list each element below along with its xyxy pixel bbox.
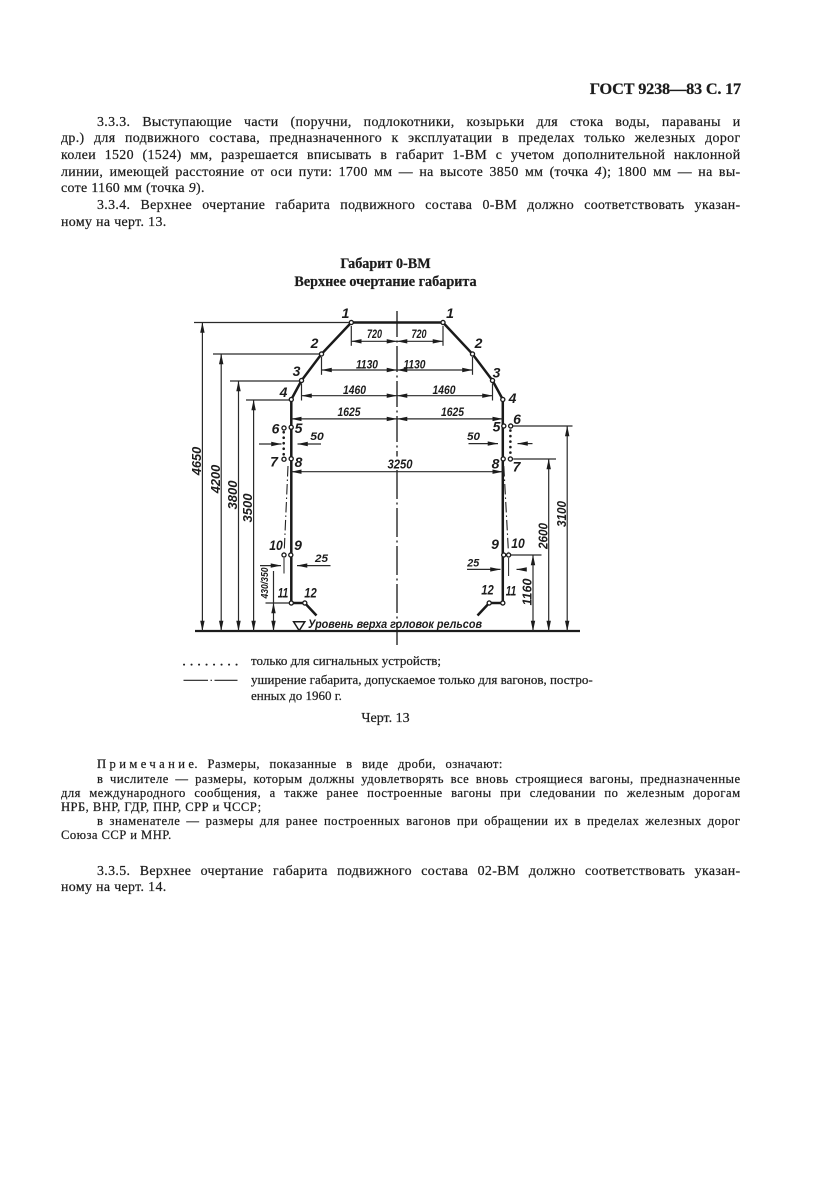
svg-text:1130: 1130 <box>356 358 378 372</box>
svg-text:12: 12 <box>304 585 317 601</box>
svg-text:25: 25 <box>466 557 480 569</box>
svg-text:2: 2 <box>310 335 319 351</box>
svg-text:9: 9 <box>491 536 499 552</box>
svg-text:6: 6 <box>513 411 521 427</box>
svg-text:430/350: 430/350 <box>259 567 271 599</box>
svg-text:2600: 2600 <box>536 523 550 550</box>
svg-text:50: 50 <box>310 431 324 443</box>
svg-text:8: 8 <box>295 454 303 470</box>
svg-text:1625: 1625 <box>338 405 361 419</box>
svg-text:12: 12 <box>481 582 494 598</box>
svg-text:1460: 1460 <box>433 383 456 397</box>
svg-text:3800: 3800 <box>226 480 240 509</box>
svg-text:1160: 1160 <box>521 578 535 605</box>
svg-text:8: 8 <box>492 456 500 472</box>
svg-text:4200: 4200 <box>209 465 223 495</box>
svg-text:1130: 1130 <box>404 358 426 372</box>
svg-text:11: 11 <box>278 585 289 601</box>
svg-text:3500: 3500 <box>241 493 255 522</box>
svg-text:3: 3 <box>493 365 501 381</box>
svg-text:4: 4 <box>508 390 517 406</box>
svg-text:11: 11 <box>506 583 517 599</box>
svg-text:1625: 1625 <box>441 405 464 419</box>
svg-text:10: 10 <box>511 535 525 551</box>
svg-text:4: 4 <box>279 384 288 400</box>
svg-text:3100: 3100 <box>555 501 569 527</box>
svg-text:3: 3 <box>293 363 301 379</box>
svg-text:1: 1 <box>342 305 350 321</box>
svg-text:10: 10 <box>269 537 283 553</box>
svg-text:1: 1 <box>446 305 454 321</box>
svg-text:4650: 4650 <box>190 447 204 477</box>
svg-text:50: 50 <box>467 431 481 443</box>
svg-text:720: 720 <box>412 327 427 341</box>
svg-text:25: 25 <box>314 553 329 565</box>
svg-text:2: 2 <box>474 335 483 351</box>
svg-text:5: 5 <box>493 419 501 435</box>
svg-text:Уровень верха головок рельсов: Уровень верха головок рельсов <box>308 617 482 631</box>
svg-text:720: 720 <box>367 327 382 341</box>
svg-text:1460: 1460 <box>343 383 366 397</box>
svg-text:3250: 3250 <box>388 457 413 471</box>
svg-text:7: 7 <box>513 459 522 475</box>
svg-text:7: 7 <box>270 454 279 470</box>
svg-text:5: 5 <box>295 420 303 436</box>
svg-text:6: 6 <box>272 421 280 437</box>
svg-text:9: 9 <box>294 537 302 553</box>
